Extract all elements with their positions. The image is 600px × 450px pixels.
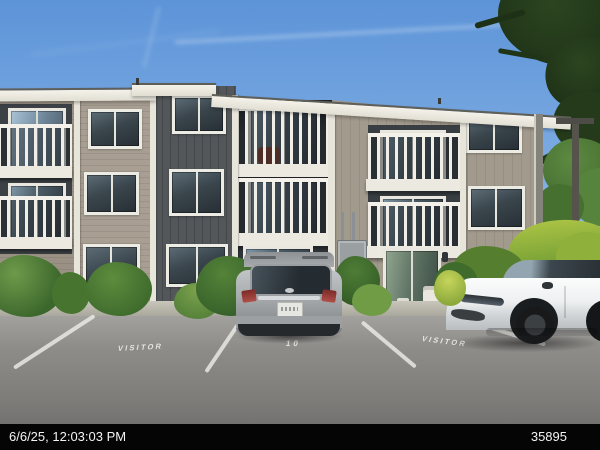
window [468, 186, 525, 230]
balcony-floor [0, 166, 72, 178]
suv-taillight [241, 289, 257, 303]
balcony-floor [366, 179, 462, 191]
sedan-white [446, 256, 600, 354]
suv-taillight [321, 289, 337, 303]
sedan-door-seam [564, 286, 566, 318]
balcony-floor [234, 233, 334, 246]
ornamental-grass [352, 284, 392, 316]
suv-silver [234, 252, 344, 344]
contrail [175, 23, 515, 44]
bush [86, 262, 152, 316]
apartment-building-photo: VISITOR 10 VISITOR [0, 0, 600, 450]
window [88, 109, 142, 149]
corner-trim [150, 94, 156, 312]
suv-emblem [285, 288, 294, 293]
suv-roof-rail [302, 256, 328, 259]
balcony-floor [234, 164, 334, 177]
roof-vent [136, 78, 139, 85]
suv-bumper-lower [238, 324, 340, 336]
photo-info-bar: 6/6/25, 12:03:03 PM 35895 [0, 424, 600, 450]
roof-fascia [132, 83, 216, 96]
bush [52, 272, 90, 314]
roof-vent [438, 98, 441, 104]
photo-number: 35895 [531, 424, 567, 450]
sedan-front-wheel [516, 306, 554, 344]
suv-plate-text-smudge [281, 307, 298, 311]
plant-in-front-of-sedan [434, 270, 466, 306]
sedan-rocker-shadow [486, 328, 598, 336]
sedan-mirror [542, 282, 553, 289]
window [84, 172, 139, 215]
utility-pole-crossarm [556, 118, 594, 124]
utility-meter-pipes [341, 212, 344, 242]
suv-chrome-trim [258, 296, 320, 300]
balcony-floor [0, 237, 72, 249]
window [169, 169, 224, 216]
photo-timestamp: 6/6/25, 12:03:03 PM [9, 424, 126, 450]
suv-roof-rail [250, 256, 276, 259]
